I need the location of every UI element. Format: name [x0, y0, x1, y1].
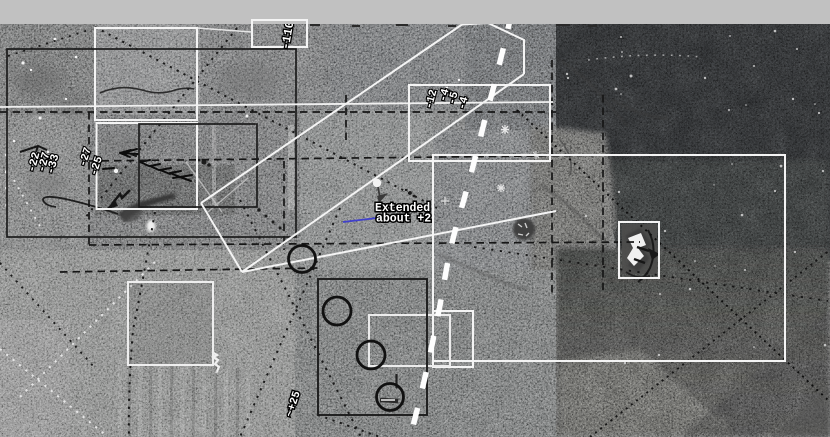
svg-text:about +2: about +2 [376, 213, 431, 226]
